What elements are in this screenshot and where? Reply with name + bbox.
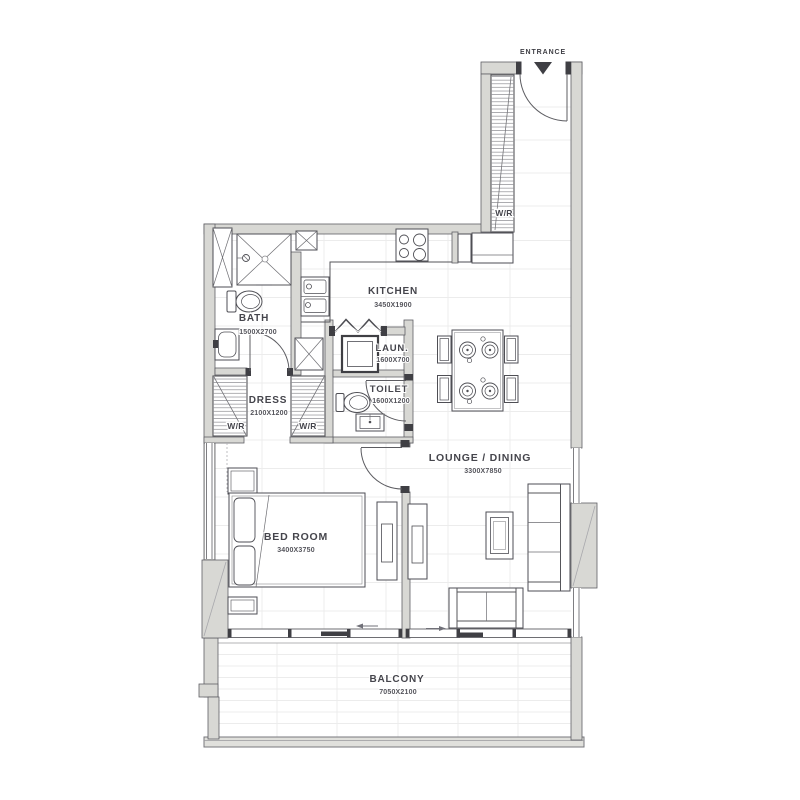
duct-shaft-kitchen — [296, 231, 317, 250]
dress-dims: 2100X1200 — [250, 410, 288, 417]
bath-dims: 1500X2700 — [239, 329, 277, 336]
kitchen-stove — [396, 229, 428, 261]
window-west — [205, 443, 227, 559]
kitchen-cabinets — [458, 233, 513, 263]
laundry-dims: 1600X700 — [376, 357, 410, 364]
tv-console-lounge — [408, 504, 427, 579]
duct-shaft-laundry — [295, 338, 323, 370]
dress-wardrobe-left-label: W/R — [227, 421, 244, 431]
slider-panel — [457, 633, 483, 638]
shower-drain-icon — [262, 256, 268, 262]
balcony-label: BALCONY — [369, 674, 424, 685]
entrance-door — [520, 74, 567, 121]
shower — [237, 234, 291, 285]
floorplan-drawing: ENTRANCE W/R KITCHEN 3450X1900 BATH 1500… — [0, 0, 800, 800]
bedroom-label: BED ROOM — [264, 531, 328, 543]
washing-machine — [342, 336, 378, 372]
slider-panel — [321, 632, 348, 637]
bedroom-dims: 3400X3750 — [277, 547, 315, 554]
coffee-table — [486, 512, 513, 559]
balcony-dims: 7050X2100 — [379, 689, 417, 696]
toilet-dims: 1600X1200 — [372, 398, 410, 405]
bedroom-door — [361, 440, 410, 493]
entrance-door-jamb-left — [516, 62, 522, 75]
bath-toilet — [227, 291, 262, 312]
column-west — [202, 560, 228, 638]
wall-dress-south-east — [290, 437, 333, 443]
toilet-label: TOILET — [370, 384, 408, 395]
dining-table — [452, 330, 503, 411]
wall-balcony-west-jog — [199, 684, 218, 697]
entrance-door-jamb-right — [566, 62, 572, 75]
slide-arrow-left-icon — [356, 624, 378, 629]
toilet-sink — [356, 414, 384, 431]
lounge-label: LOUNGE / DINING — [429, 452, 531, 464]
parapet — [204, 737, 584, 747]
wall-east — [571, 62, 582, 448]
bath-label: BATH — [239, 313, 269, 324]
bifold-door — [329, 320, 387, 337]
sofa-small — [449, 588, 523, 628]
column-east — [571, 503, 597, 588]
lounge-dining — [408, 330, 570, 628]
tv-console-bedroom — [377, 502, 397, 580]
wall-laundry-west — [325, 320, 333, 443]
sofa-large — [528, 484, 570, 591]
entrance-label: ENTRANCE — [520, 49, 566, 56]
nightstand-bottom — [228, 597, 257, 614]
wall-dress-south-west — [204, 437, 244, 443]
duct-shaft-bath — [213, 228, 232, 287]
dress-label: DRESS — [249, 395, 287, 406]
laundry-label: LAUN. — [375, 343, 408, 354]
dress-wardrobe-right-label: W/R — [299, 421, 316, 431]
floorplan-page: ENTRANCE W/R KITCHEN 3450X1900 BATH 1500… — [0, 0, 800, 800]
lounge-dims: 3300X7850 — [464, 468, 502, 475]
wall-corridor-west — [481, 74, 491, 232]
bedroom — [228, 440, 410, 614]
wall-balcony-east — [571, 637, 582, 740]
toilet-wc — [336, 393, 370, 413]
wall-entrance-left — [481, 62, 520, 74]
entrance-arrow-icon — [534, 62, 552, 75]
window-east-upper — [572, 448, 581, 503]
kitchen-sink — [301, 277, 329, 316]
nightstand-top — [228, 468, 257, 494]
bath-sink — [213, 329, 239, 360]
pillow-top — [234, 498, 255, 542]
entrance — [516, 62, 571, 122]
balcony-slider-bedroom — [228, 624, 402, 638]
wall-bath-south — [215, 368, 247, 375]
kitchen-label: KITCHEN — [368, 286, 418, 297]
pillow-bottom — [234, 546, 255, 585]
window-east-lower — [572, 588, 581, 637]
wall-balcony-west-lower — [208, 697, 219, 739]
kitchen-dims: 3450X1900 — [374, 302, 412, 309]
wall-top — [204, 224, 491, 234]
hall-wardrobe-label: W/R — [495, 208, 512, 218]
wall-kitchen-stub — [452, 232, 458, 263]
